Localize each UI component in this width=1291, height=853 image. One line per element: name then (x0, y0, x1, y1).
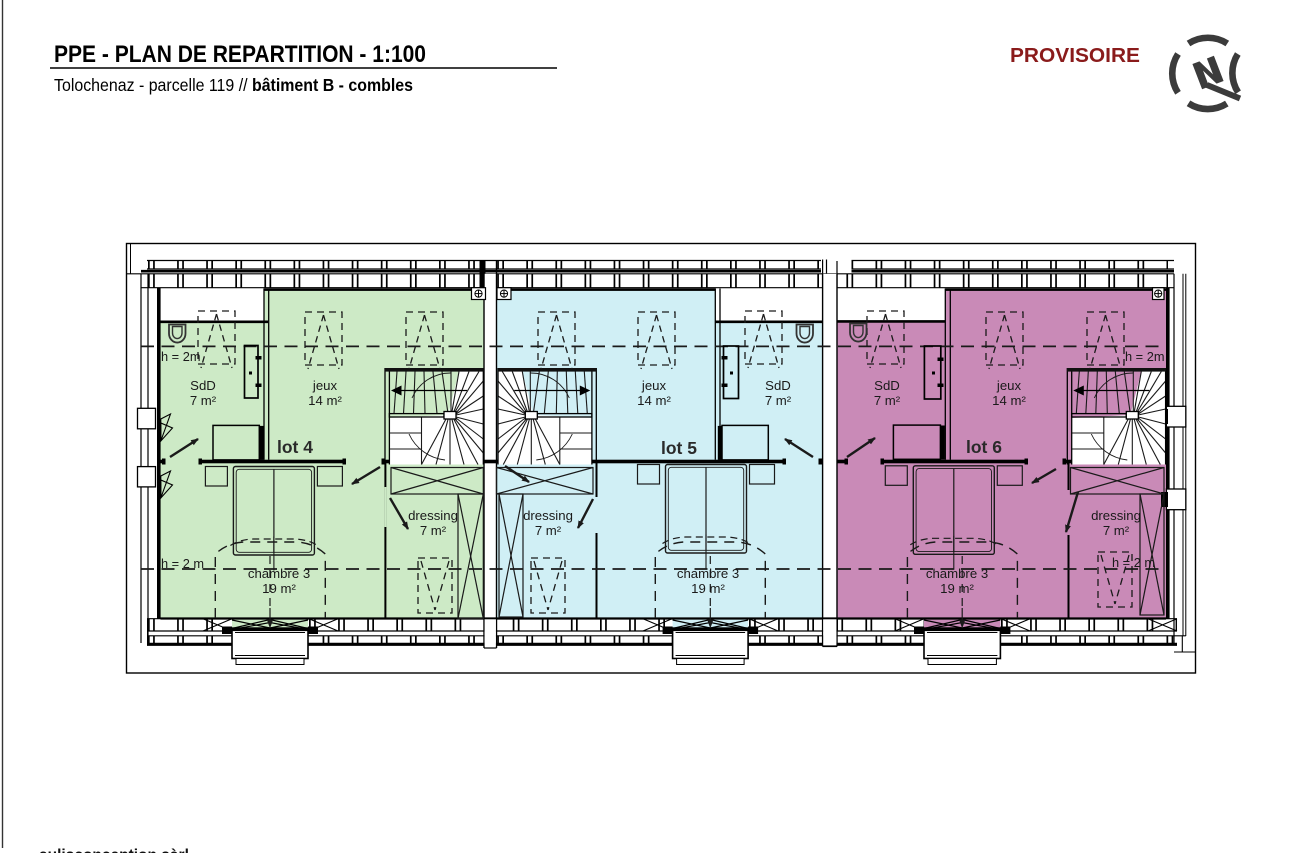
svg-text:14 m²: 14 m² (637, 393, 671, 408)
svg-text:chambre 3: chambre 3 (926, 566, 988, 581)
svg-text:dressing: dressing (408, 508, 458, 523)
svg-text:SdD: SdD (874, 378, 900, 393)
svg-text:PROVISOIRE: PROVISOIRE (1010, 44, 1140, 67)
svg-text:SdD: SdD (190, 378, 216, 393)
svg-text:jeux: jeux (312, 378, 338, 393)
svg-text:Tolochenaz - parcelle 119 // b: Tolochenaz - parcelle 119 // bâtiment B … (54, 75, 413, 95)
svg-text:19 m²: 19 m² (940, 581, 974, 596)
svg-text:7 m²: 7 m² (1103, 523, 1130, 538)
svg-text:h = 2m: h = 2m (161, 349, 200, 364)
svg-text:chambre 3: chambre 3 (677, 566, 739, 581)
svg-text:h = 2 m: h = 2 m (1112, 555, 1155, 570)
svg-text:19 m²: 19 m² (691, 581, 725, 596)
svg-text:7 m²: 7 m² (874, 393, 901, 408)
svg-text:dressing: dressing (523, 508, 573, 523)
svg-text:7 m²: 7 m² (420, 523, 447, 538)
svg-text:dressing: dressing (1091, 508, 1141, 523)
svg-text:7 m²: 7 m² (190, 393, 217, 408)
svg-text:lot 4: lot 4 (277, 437, 313, 457)
svg-text:chambre 3: chambre 3 (248, 566, 310, 581)
svg-text:h = 2 m: h = 2 m (161, 556, 204, 571)
svg-text:PPE - PLAN DE REPARTITION - 1:: PPE - PLAN DE REPARTITION - 1:100 (54, 41, 426, 68)
svg-text:SdD: SdD (765, 378, 791, 393)
svg-text:lot 6: lot 6 (966, 437, 1002, 457)
svg-text:19 m²: 19 m² (262, 581, 296, 596)
svg-text:jeux: jeux (641, 378, 667, 393)
svg-text:lot 5: lot 5 (661, 438, 697, 458)
svg-text:7 m²: 7 m² (535, 523, 562, 538)
svg-text:aulisconception sàrl: aulisconception sàrl (39, 847, 189, 853)
svg-text:7 m²: 7 m² (765, 393, 792, 408)
svg-text:jeux: jeux (996, 378, 1022, 393)
svg-text:14 m²: 14 m² (308, 393, 342, 408)
svg-text:h = 2m: h = 2m (1125, 349, 1164, 364)
svg-text:14 m²: 14 m² (992, 393, 1026, 408)
